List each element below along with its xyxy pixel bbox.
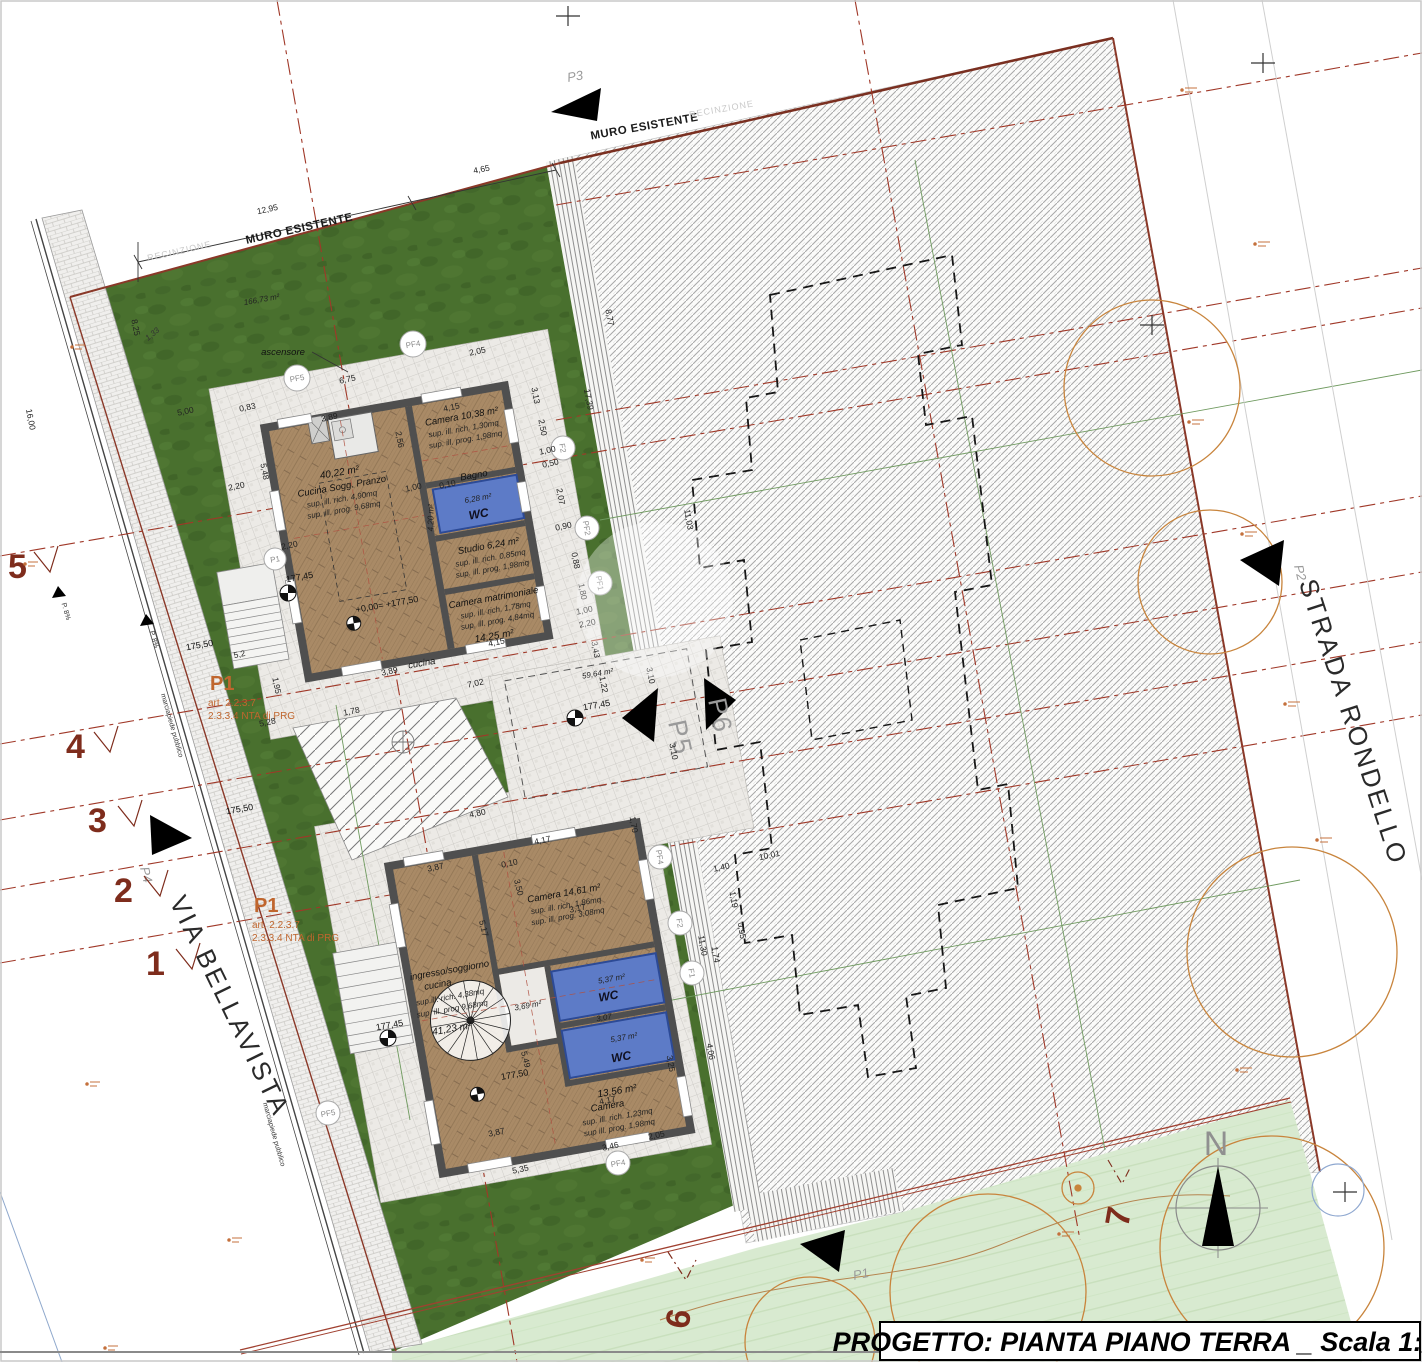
title-block: PROGETTO: PIANTA PIANO TERRA _ Scala 1:1… — [833, 1322, 1422, 1360]
ramp-label-2: P. 8% — [148, 630, 160, 649]
arrow-label-p3: P3 — [566, 67, 585, 85]
section-1: 1 — [146, 945, 165, 983]
zone-a-p1: P1 — [210, 673, 234, 695]
zone-b-art1: art. 2.2.3.7 — [252, 920, 300, 931]
blue-marker-circle — [1312, 1164, 1364, 1216]
site-plan-page: 40,22 m² Cucina Sogg. Pranzo sup. ill. r… — [0, 0, 1422, 1362]
ascensore-label: ascensore — [261, 347, 305, 358]
dim-16-00: 16,00 — [24, 408, 38, 431]
zone-a-art1: art. 2.2.3.7 — [208, 698, 256, 709]
dim-12-95: 12,95 — [256, 202, 279, 216]
recinzione-right: RECINZIONE — [688, 98, 754, 119]
arrow-label-p4: P4 — [137, 865, 155, 884]
section-4: 4 — [66, 728, 85, 766]
section-3: 3 — [88, 802, 107, 840]
watermark — [577, 522, 733, 678]
ramp-label-1: P. 8% — [60, 602, 72, 621]
upper-disimpegno-area: 4,20 m² — [427, 504, 436, 531]
ramp-labels: P. 8% P. 8% — [52, 586, 159, 649]
recinzione-left: RECINZIONE — [146, 239, 212, 263]
section-2: 2 — [114, 872, 133, 910]
site-plan-drawing: 40,22 m² Cucina Sogg. Pranzo sup. ill. r… — [0, 0, 1422, 1362]
blue-utility-line — [0, 1192, 62, 1362]
street-strada-rondello: STRADA RONDELLO — [1293, 575, 1414, 869]
section-5: 5 — [8, 548, 27, 586]
dim-4-65: 4,65 — [472, 163, 490, 176]
zone-b-art2: 2.3.3.4 NTA di PRG — [252, 933, 339, 944]
zone-b-p1: P1 — [254, 895, 278, 917]
drawing-title: PROGETTO: PIANTA PIANO TERRA _ Scala 1:1… — [833, 1327, 1422, 1357]
north-label: N — [1204, 1125, 1229, 1163]
marciapiede-label-1: marciapiede pubblico — [159, 693, 184, 759]
zone-a-art2: 2.3.3.4 NTA di PRG — [208, 711, 295, 722]
